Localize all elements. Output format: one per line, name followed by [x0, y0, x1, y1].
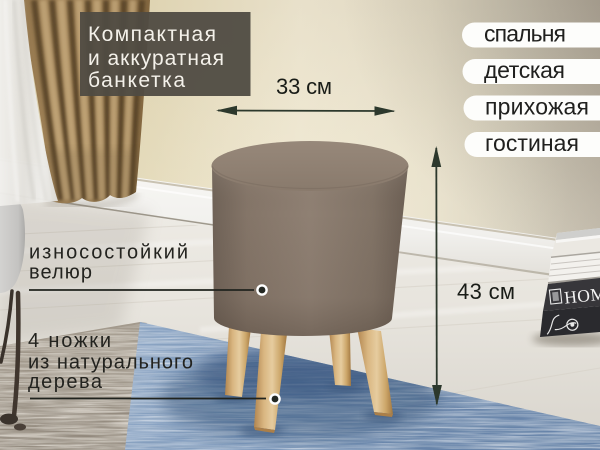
svg-text:гостиная: гостиная	[485, 130, 579, 156]
svg-text:банкетка: банкетка	[88, 69, 185, 92]
svg-text:Компактная: Компактная	[88, 23, 216, 46]
svg-text:дерева: дерева	[28, 371, 103, 393]
svg-text:33 см: 33 см	[276, 74, 332, 99]
svg-text:детская: детская	[484, 57, 565, 83]
svg-text:спальня: спальня	[484, 21, 566, 47]
svg-text:из натурального: из натурального	[28, 352, 193, 374]
svg-text:износостойкий: износостойкий	[29, 242, 188, 264]
svg-text:43 см: 43 см	[457, 279, 515, 304]
svg-text:и аккуратная: и аккуратная	[88, 47, 224, 70]
svg-text:прихожая: прихожая	[485, 94, 589, 120]
svg-text:велюр: велюр	[29, 262, 92, 284]
